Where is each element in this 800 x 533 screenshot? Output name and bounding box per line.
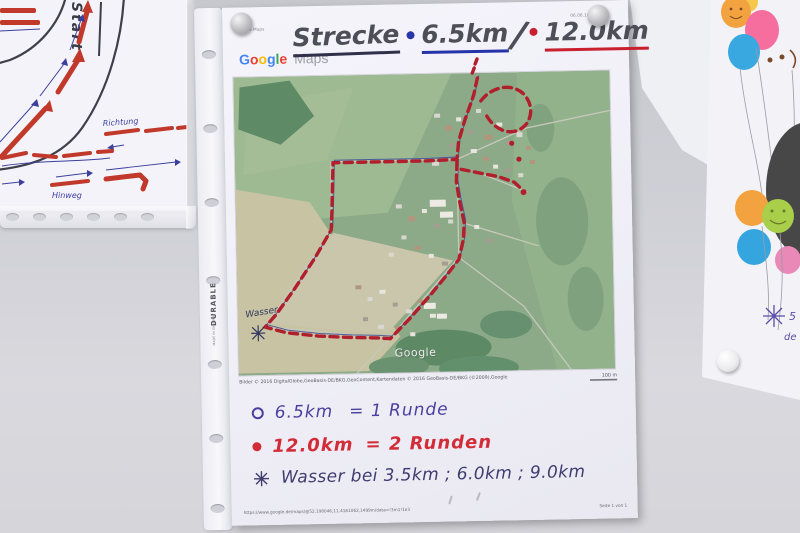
note-1-text: 6.5km= 1 Runde xyxy=(275,400,449,423)
punch-hole xyxy=(208,360,222,369)
note-2-equals: = 2 Runden xyxy=(365,432,492,455)
hinweg-label: Hinweg xyxy=(52,191,82,200)
logo-letter: G xyxy=(239,51,250,67)
blue-guide-line xyxy=(0,29,40,31)
balloon-eye xyxy=(771,210,774,213)
left-sketch-drawing: Start Richtung xyxy=(0,0,187,211)
note-1-equals: = 1 Runde xyxy=(349,400,449,422)
red-dash xyxy=(52,181,88,185)
logo-letter: o xyxy=(258,51,267,67)
title-distance-short: 6.5km xyxy=(421,20,509,54)
scale-bar xyxy=(590,379,617,381)
red-hook-arrow xyxy=(106,175,146,189)
partial-handwriting: 5 xyxy=(789,310,796,323)
note-line-3: Wasser bei 3.5km ; 6.0km ; 9.0km xyxy=(253,461,625,488)
red-arrowhead xyxy=(42,100,53,112)
punch-hole xyxy=(114,213,127,221)
left-sketch-paper: Start Richtung xyxy=(0,0,187,211)
punch-hole xyxy=(203,124,217,133)
start-bar xyxy=(0,8,36,13)
right-balloon-drawing: 5 de xyxy=(696,0,800,400)
blue-arrowhead xyxy=(175,159,181,166)
photo-of-notice-board: Start Richtung xyxy=(0,0,800,533)
red-dot-icon xyxy=(529,28,537,36)
note-3-text: Wasser bei 3.5km ; 6.0km ; 9.0km xyxy=(281,462,586,488)
blue-arrowhead xyxy=(19,179,25,186)
punch-hole xyxy=(33,213,46,221)
pen-mark xyxy=(476,492,481,501)
handwritten-notes: 6.5km= 1 Runde 12.0km= 2 Runden Wasser b… xyxy=(252,396,626,488)
pen-mark xyxy=(448,495,453,504)
start-bar xyxy=(0,20,40,25)
start-line xyxy=(99,2,101,56)
punch-hole xyxy=(205,198,219,207)
footer-page-info: Seite 1 von 1 xyxy=(600,503,628,508)
left-sleeve-strip xyxy=(0,206,196,228)
note-2-text: 12.0km= 2 Runden xyxy=(272,432,492,457)
punch-hole xyxy=(60,213,73,221)
punch-hole xyxy=(202,50,216,59)
note-line-2: 12.0km= 2 Runden xyxy=(252,429,624,457)
satellite-map-image: Wasser Google Google xyxy=(233,70,615,375)
map-credits: Bilder © 2016 DigitalGlobe,GeoBasis-DE/B… xyxy=(239,374,507,385)
partial-handwriting: de xyxy=(784,332,797,343)
ring-bullet-icon xyxy=(252,407,264,419)
balloon-eye xyxy=(730,8,733,11)
balloon-eye xyxy=(740,8,743,11)
google-watermark: Google xyxy=(395,346,437,360)
printed-page: Google Maps 06.06.16 Google Maps Strecke… xyxy=(222,0,638,526)
logo-letter: g xyxy=(267,51,276,67)
red-dash xyxy=(472,59,477,73)
blue-arrow xyxy=(112,145,124,147)
balloon-artwork: 5 de xyxy=(696,0,800,400)
asterisk-icon xyxy=(763,305,785,327)
blue-dot-icon xyxy=(406,31,414,39)
map-credits-row: Bilder © 2016 DigitalGlobe,GeoBasis-DE/B… xyxy=(239,372,615,389)
punch-hole xyxy=(87,213,100,221)
asterisk-icon xyxy=(253,470,270,487)
logo-letter: e xyxy=(279,51,287,67)
note-1-distance: 6.5km xyxy=(275,402,334,423)
balloon-pink xyxy=(775,246,800,274)
footer-url: https://www.google.de/maps/@52.198046,11… xyxy=(244,507,410,515)
balloon-eye xyxy=(783,210,786,213)
title-separator: / xyxy=(511,21,528,53)
dot-bullet-icon xyxy=(252,442,261,451)
route-map-sheet: DURABLE MADE IN GERMANY Google Maps 06.0… xyxy=(192,0,658,533)
route-overflow-dashes xyxy=(463,57,493,76)
note-2-distance: 12.0km xyxy=(272,434,354,457)
map-scale: 100 m xyxy=(590,372,617,380)
balloon-green xyxy=(762,199,794,233)
sleeve-origin: MADE IN GERMANY xyxy=(212,313,216,346)
pushpin xyxy=(717,350,739,372)
blue-guide-line xyxy=(2,158,110,166)
blue-arrowhead xyxy=(107,144,114,150)
note-line-1: 6.5km= 1 Runde xyxy=(252,396,624,423)
satellite-map: Wasser Google Google xyxy=(233,70,615,375)
red-arrow xyxy=(58,60,78,92)
punch-hole xyxy=(209,434,223,443)
blue-arrowhead xyxy=(87,170,93,177)
partial-smile xyxy=(790,50,795,68)
drawn-dot xyxy=(768,58,773,63)
blue-arrow xyxy=(56,173,88,177)
dark-figure xyxy=(766,122,800,258)
balloon-blue xyxy=(728,34,760,70)
title-word: Strecke xyxy=(292,22,400,58)
print-footer: https://www.google.de/maps/@52.198046,11… xyxy=(244,503,628,517)
punch-hole xyxy=(6,213,19,221)
blue-arrowhead xyxy=(61,58,68,66)
left-route-sketch: Start Richtung xyxy=(0,0,200,232)
blue-arrow xyxy=(2,182,20,184)
red-dashes xyxy=(106,127,187,134)
scale-label: 100 m xyxy=(602,372,617,378)
drawn-dot xyxy=(780,55,785,60)
blue-arrow xyxy=(106,162,176,170)
richtung-label: Richtung xyxy=(103,117,139,128)
punch-hole xyxy=(141,213,154,221)
punch-hole xyxy=(211,504,225,513)
